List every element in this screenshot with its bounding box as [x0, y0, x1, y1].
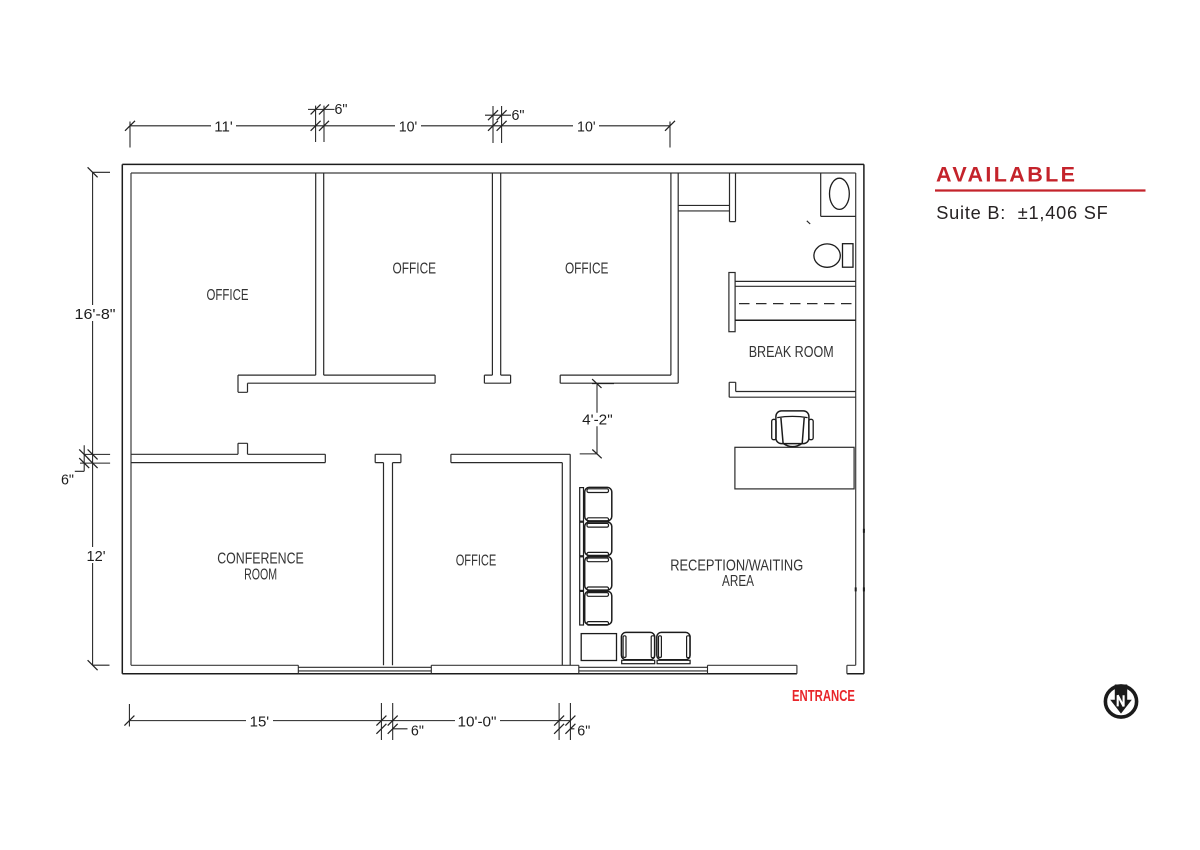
- svg-text:6": 6": [61, 472, 74, 489]
- svg-text:BREAK ROOM: BREAK ROOM: [749, 344, 834, 361]
- svg-text:12': 12': [87, 548, 106, 565]
- svg-text:AREA: AREA: [722, 573, 755, 590]
- svg-text:CONFERENCE: CONFERENCE: [217, 550, 304, 567]
- svg-text:AVAILABLE: AVAILABLE: [936, 162, 1075, 186]
- svg-text:OFFICE: OFFICE: [565, 261, 609, 278]
- svg-text:11': 11': [214, 118, 233, 135]
- svg-text:4'-2": 4'-2": [582, 411, 613, 428]
- svg-text:ROOM: ROOM: [244, 567, 277, 584]
- svg-text:6": 6": [335, 101, 348, 118]
- svg-text:OFFICE: OFFICE: [393, 261, 437, 278]
- svg-text:ENTRANCE: ENTRANCE: [792, 688, 855, 705]
- svg-text:Suite B: ±1,406 SF: Suite B: ±1,406 SF: [936, 203, 1108, 223]
- svg-text:10'-0": 10'-0": [458, 713, 497, 730]
- svg-text:OFFICE: OFFICE: [207, 287, 249, 304]
- svg-text:6": 6": [512, 107, 525, 124]
- svg-text:10': 10': [399, 118, 418, 135]
- svg-text:OFFICE: OFFICE: [456, 553, 497, 570]
- svg-text:15': 15': [250, 713, 270, 730]
- svg-text:10': 10': [577, 118, 596, 135]
- svg-text:16'-8": 16'-8": [75, 306, 116, 323]
- svg-text:6": 6": [577, 722, 590, 739]
- svg-text:6": 6": [411, 722, 424, 739]
